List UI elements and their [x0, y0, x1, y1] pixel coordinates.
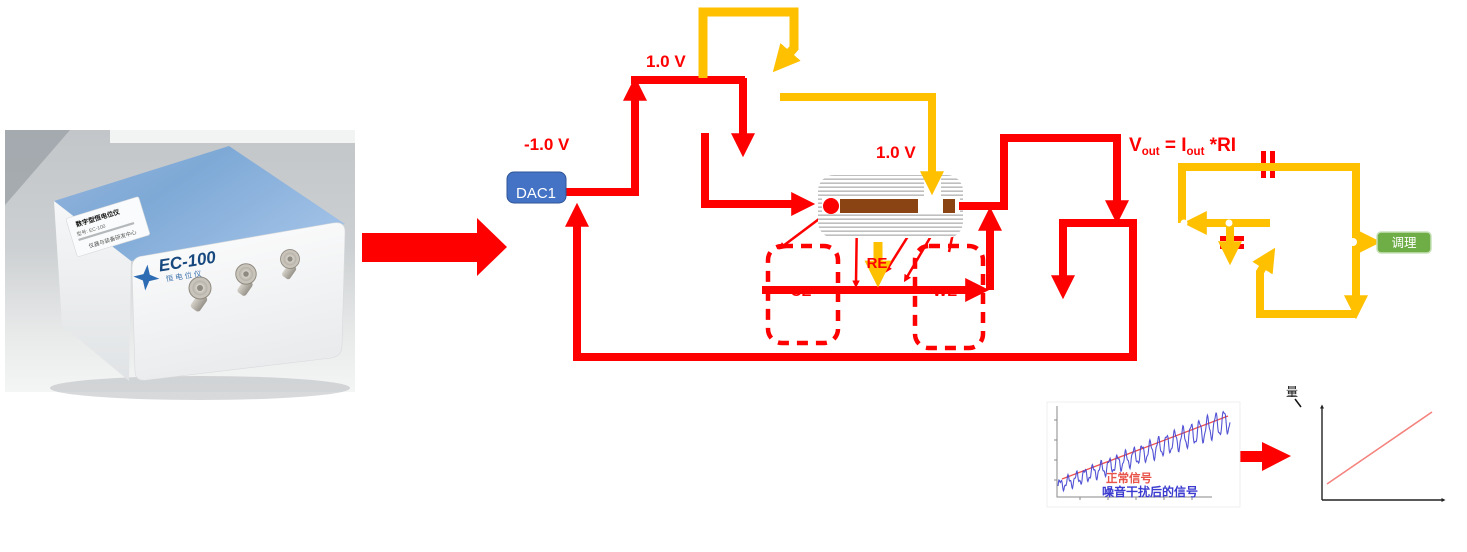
electrode-contact-dot	[823, 198, 839, 214]
device-photo: 数字型恒电位仪 型号: EC-100 仪器与装备研发中心 EC-100 恒电位仪	[5, 130, 355, 400]
bnc-pin	[243, 271, 249, 277]
junction-dot	[1349, 238, 1357, 246]
conditioning-box: 调理	[1377, 232, 1431, 253]
noisy-signal-label: 噪音干扰后的信号	[1102, 484, 1198, 499]
clean-plot-frame	[1293, 385, 1455, 507]
noisy-signal-plot: 正常信号 噪音干扰后的信号	[1047, 402, 1240, 507]
pos-voltage-top-label: 1.0 V	[646, 52, 686, 71]
electrode-inlet-slot	[924, 174, 941, 198]
formula-v: V	[1129, 135, 1142, 156]
branch-down-arrow	[1063, 223, 1137, 280]
junction-dot	[1181, 220, 1188, 227]
bottom-feedback-loop	[1260, 264, 1356, 314]
cell-output-line	[959, 138, 1117, 206]
electrode-band-main	[840, 199, 918, 213]
junction-dot	[1226, 220, 1233, 227]
ce-label: CE	[791, 283, 812, 300]
electrochemical-cell	[818, 174, 963, 238]
bnc-pin	[197, 285, 203, 291]
photo-top-strip	[110, 130, 355, 143]
re-sense-line	[780, 97, 932, 176]
sense-signal-paths	[703, 12, 1362, 314]
dac1-label: DAC1	[516, 185, 556, 202]
transimpedance-formula: Vout = Iout *RI	[1129, 135, 1236, 158]
clean-plot-axis-label: 量	[1286, 385, 1298, 399]
top-feedback-loop	[703, 12, 794, 78]
re-label: RE	[867, 255, 888, 272]
formula-i-sub: out	[1187, 146, 1205, 158]
noisy-to-clean-arrow-icon	[1232, 442, 1291, 471]
we-label: WE	[933, 283, 957, 300]
formula-v-sub: out	[1142, 146, 1160, 158]
normal-signal-label: 正常信号	[1106, 471, 1152, 485]
electrode-band-small	[943, 199, 955, 213]
screenshot-root: 数字型恒电位仪 型号: EC-100 仪器与装备研发中心 EC-100 恒电位仪	[0, 0, 1467, 552]
device-shadow	[50, 376, 350, 400]
line-to-cell	[705, 133, 796, 204]
conditioning-label: 调理	[1391, 236, 1417, 250]
diagram-canvas: 数字型恒电位仪 型号: EC-100 仪器与装备研发中心 EC-100 恒电位仪	[0, 0, 1467, 552]
clean-signal-plot: 量	[1286, 385, 1455, 507]
bnc-pin	[287, 256, 292, 261]
neg-voltage-label: -1.0 V	[524, 135, 570, 154]
formula-eq-i: = I	[1160, 135, 1187, 156]
dac1-box: DAC1	[507, 172, 566, 203]
formula-r: *RI	[1204, 135, 1236, 156]
photo-to-diagram-arrow-icon	[362, 218, 507, 276]
pos-voltage-cell-label: 1.0 V	[876, 143, 916, 162]
